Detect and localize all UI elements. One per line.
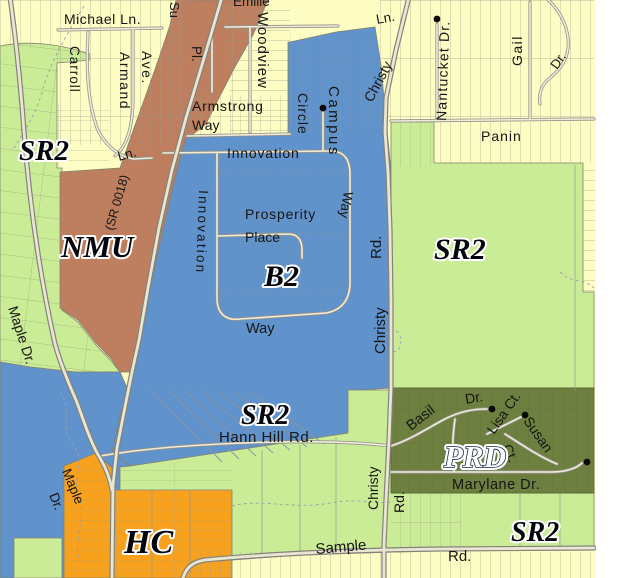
street-label-woodview: Woodview	[254, 12, 271, 89]
street-label-su: Su	[167, 2, 182, 18]
zone-sr2-patch[interactable]	[14, 538, 62, 578]
zone-label-sr2-central: SR2	[241, 400, 289, 431]
street-label-armstrong-way: Way	[192, 117, 219, 133]
street-label-christy-south: Christy	[365, 466, 381, 510]
street-label-place: Place	[245, 229, 280, 245]
street-label-pl: Pl.	[189, 46, 204, 62]
zone-label-prd: PRD PRD	[443, 439, 506, 474]
cul-de-sac-dot	[584, 459, 591, 466]
street-label-innovation-h: Innovation	[227, 145, 300, 161]
street-label-rd-christy-south: Rd.	[391, 491, 407, 513]
street-label-armand: Armand	[117, 52, 133, 110]
street-label-rd-christy-mid: Rd.	[368, 236, 385, 259]
zone-label-nmu: NMU	[60, 229, 135, 264]
zone-label-sr2-southeast: SR2	[511, 517, 559, 548]
street-label-armstrong: Armstrong	[192, 98, 264, 114]
zone-label-b2: B2	[263, 260, 299, 293]
street-label-way-loop-south: Way	[246, 321, 275, 337]
zoning-map-viewport[interactable]: Michael Ln. Su Emilie Pl. Woodview Carro…	[0, 0, 639, 578]
street-label-gail: Gail	[509, 35, 525, 66]
zone-label-sr2-west: SR2	[19, 135, 69, 167]
street-label-hann-hill-rd: Hann Hill Rd.	[219, 429, 314, 446]
street-label-ave: Ave.	[139, 51, 155, 85]
street-label-circle: Circle	[295, 93, 311, 135]
street-label-panin: Panin	[481, 128, 522, 144]
street-label-emilie: Emilie	[233, 0, 270, 9]
zoning-map[interactable]: Michael Ln. Su Emilie Pl. Woodview Carro…	[0, 0, 639, 578]
white-margin	[596, 0, 639, 578]
street-label-prosperity: Prosperity	[245, 206, 316, 222]
street-label-dr-basil: Dr.	[464, 388, 484, 407]
street-label-innovation-v: Innovation	[193, 190, 211, 275]
street-label-christy-mid: Christy	[372, 307, 389, 354]
street-label-michael-ln: Michael Ln.	[64, 11, 141, 27]
street-label-marylane-dr: Marylane Dr.	[452, 477, 540, 493]
street-label-campus: Campus	[325, 86, 342, 157]
zone-label-hc: HC	[123, 524, 173, 561]
zone-label-sr2-east: SR2	[434, 233, 486, 266]
zone-label-prd-text: PRD	[443, 439, 506, 474]
street-label-rd-sample: Rd.	[448, 548, 471, 565]
street-label-carroll: Carroll	[67, 46, 82, 93]
street-label-ln-northeast: Ln.	[375, 9, 396, 27]
